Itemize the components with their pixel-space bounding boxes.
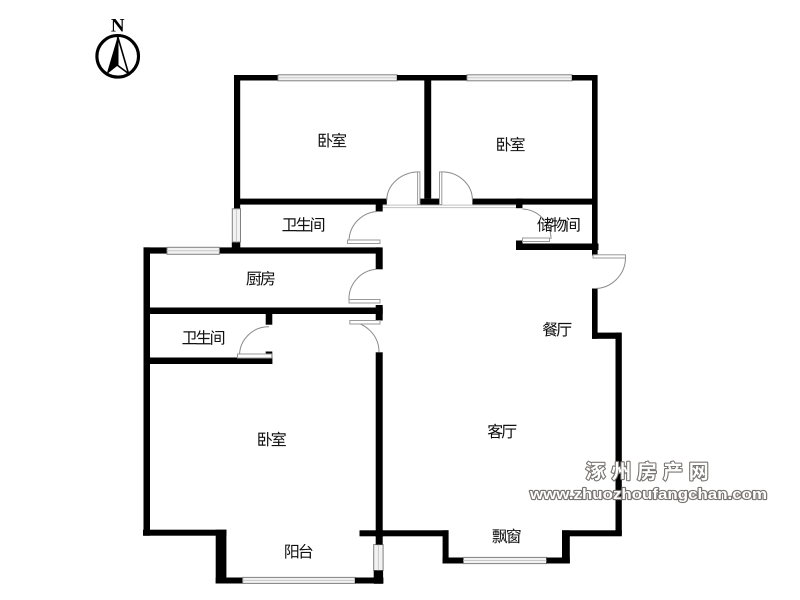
svg-text:N: N [111,15,125,36]
svg-text:www.zhuozhoufangchan.com: www.zhuozhoufangchan.com [529,486,767,503]
